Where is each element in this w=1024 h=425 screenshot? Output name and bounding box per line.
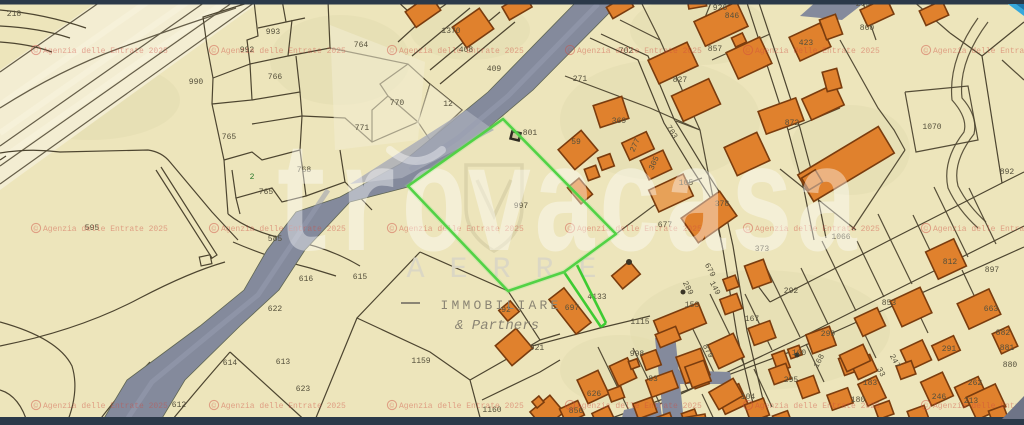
- svg-text:©: ©: [924, 47, 929, 56]
- svg-text:2: 2: [250, 173, 255, 182]
- svg-text:©: ©: [212, 225, 217, 234]
- svg-text:©: ©: [924, 402, 929, 411]
- svg-text:©: ©: [34, 402, 39, 411]
- svg-text:Agenzia delle Entrate 2025: Agenzia delle Entrate 2025: [399, 47, 524, 56]
- svg-text:1370: 1370: [441, 27, 460, 36]
- svg-text:1070: 1070: [922, 123, 941, 132]
- svg-text:622: 622: [268, 305, 283, 314]
- svg-text:Agenzia delle Entrate 2025: Agenzia delle Entrate 2025: [577, 47, 702, 56]
- svg-text:262: 262: [968, 379, 983, 388]
- svg-text:271: 271: [573, 75, 588, 84]
- svg-text:©: ©: [924, 225, 929, 234]
- svg-text:©: ©: [390, 402, 395, 411]
- svg-text:Agenzia delle Entrate 2025: Agenzia delle Entrate 2025: [221, 47, 346, 56]
- svg-text:©: ©: [746, 47, 751, 56]
- svg-text:827: 827: [673, 76, 688, 85]
- svg-text:©: ©: [568, 47, 573, 56]
- svg-text:©: ©: [390, 47, 395, 56]
- svg-text:©: ©: [746, 402, 751, 411]
- svg-text:897: 897: [985, 266, 1000, 275]
- svg-text:993: 993: [266, 28, 281, 37]
- svg-text:Agenzia delle Entrate 2025: Agenzia delle Entrate 2025: [43, 402, 168, 411]
- svg-text:& Partners: & Partners: [455, 318, 539, 334]
- svg-text:299: 299: [821, 330, 836, 339]
- svg-text:613: 613: [276, 358, 291, 367]
- svg-text:921: 921: [530, 344, 545, 353]
- svg-text:409: 409: [487, 65, 502, 74]
- svg-text:846: 846: [725, 12, 740, 21]
- svg-text:©: ©: [34, 225, 39, 234]
- svg-text:882: 882: [996, 329, 1011, 338]
- svg-text:697: 697: [565, 304, 580, 313]
- svg-text:812: 812: [943, 258, 958, 267]
- svg-text:Agenzia delle Entrate 2025: Agenzia delle Entrate 2025: [43, 47, 168, 56]
- svg-text:295: 295: [784, 376, 799, 385]
- svg-text:998: 998: [630, 350, 645, 359]
- svg-text:990: 990: [189, 78, 204, 87]
- svg-text:12: 12: [443, 100, 453, 109]
- svg-text:626: 626: [587, 390, 602, 399]
- svg-text:612: 612: [172, 401, 187, 410]
- svg-text:218: 218: [7, 10, 22, 19]
- svg-text:766: 766: [268, 73, 283, 82]
- svg-text:©: ©: [212, 47, 217, 56]
- svg-text:881: 881: [1000, 344, 1015, 353]
- svg-text:Agenzia delle Entrate 2025: Agenzia delle Entrate 2025: [221, 402, 346, 411]
- svg-text:880: 880: [1003, 361, 1018, 370]
- svg-text:160: 160: [792, 349, 807, 358]
- svg-text:183: 183: [863, 379, 878, 388]
- svg-text:IMMOBILIARE: IMMOBILIARE: [440, 298, 561, 313]
- svg-text:©: ©: [568, 402, 573, 411]
- svg-text:Agenzia delle Entrate 2025: Agenzia delle Entrate 2025: [755, 47, 880, 56]
- svg-text:167: 167: [745, 315, 760, 324]
- svg-text:©: ©: [212, 402, 217, 411]
- svg-text:83: 83: [648, 375, 658, 384]
- svg-text:860: 860: [860, 24, 875, 33]
- svg-text:623: 623: [296, 385, 311, 394]
- svg-text:Agenzia delle Entrate 2025: Agenzia delle Entrate 2025: [755, 402, 880, 411]
- svg-text:853: 853: [882, 299, 897, 308]
- svg-text:857: 857: [708, 45, 723, 54]
- svg-text:291: 291: [942, 345, 957, 354]
- svg-text:Agenzia delle Entrate 2025: Agenzia delle Entrate 2025: [933, 402, 1024, 411]
- svg-text:663: 663: [984, 305, 999, 314]
- svg-text:1115: 1115: [630, 318, 649, 327]
- svg-text:892: 892: [1000, 168, 1015, 177]
- svg-text:©: ©: [34, 47, 39, 56]
- svg-text:Agenzia delle Entrate 2025: Agenzia delle Entrate 2025: [43, 225, 168, 234]
- svg-text:Agenzia delle Entrate 2025: Agenzia delle Entrate 2025: [399, 402, 524, 411]
- svg-text:765: 765: [222, 133, 237, 142]
- svg-text:1159: 1159: [411, 357, 430, 366]
- svg-text:770: 770: [390, 99, 405, 108]
- svg-text:614: 614: [223, 359, 238, 368]
- svg-text:153: 153: [685, 301, 700, 310]
- svg-text:246: 246: [932, 393, 947, 402]
- svg-text:Agenzia delle Entrate 2025: Agenzia delle Entrate 2025: [933, 47, 1024, 56]
- svg-text:Agenzia delle Entrate 2025: Agenzia delle Entrate 2025: [577, 402, 702, 411]
- svg-text:Agenzia delle Entrate 2025: Agenzia delle Entrate 2025: [933, 225, 1024, 234]
- svg-text:764: 764: [354, 41, 369, 50]
